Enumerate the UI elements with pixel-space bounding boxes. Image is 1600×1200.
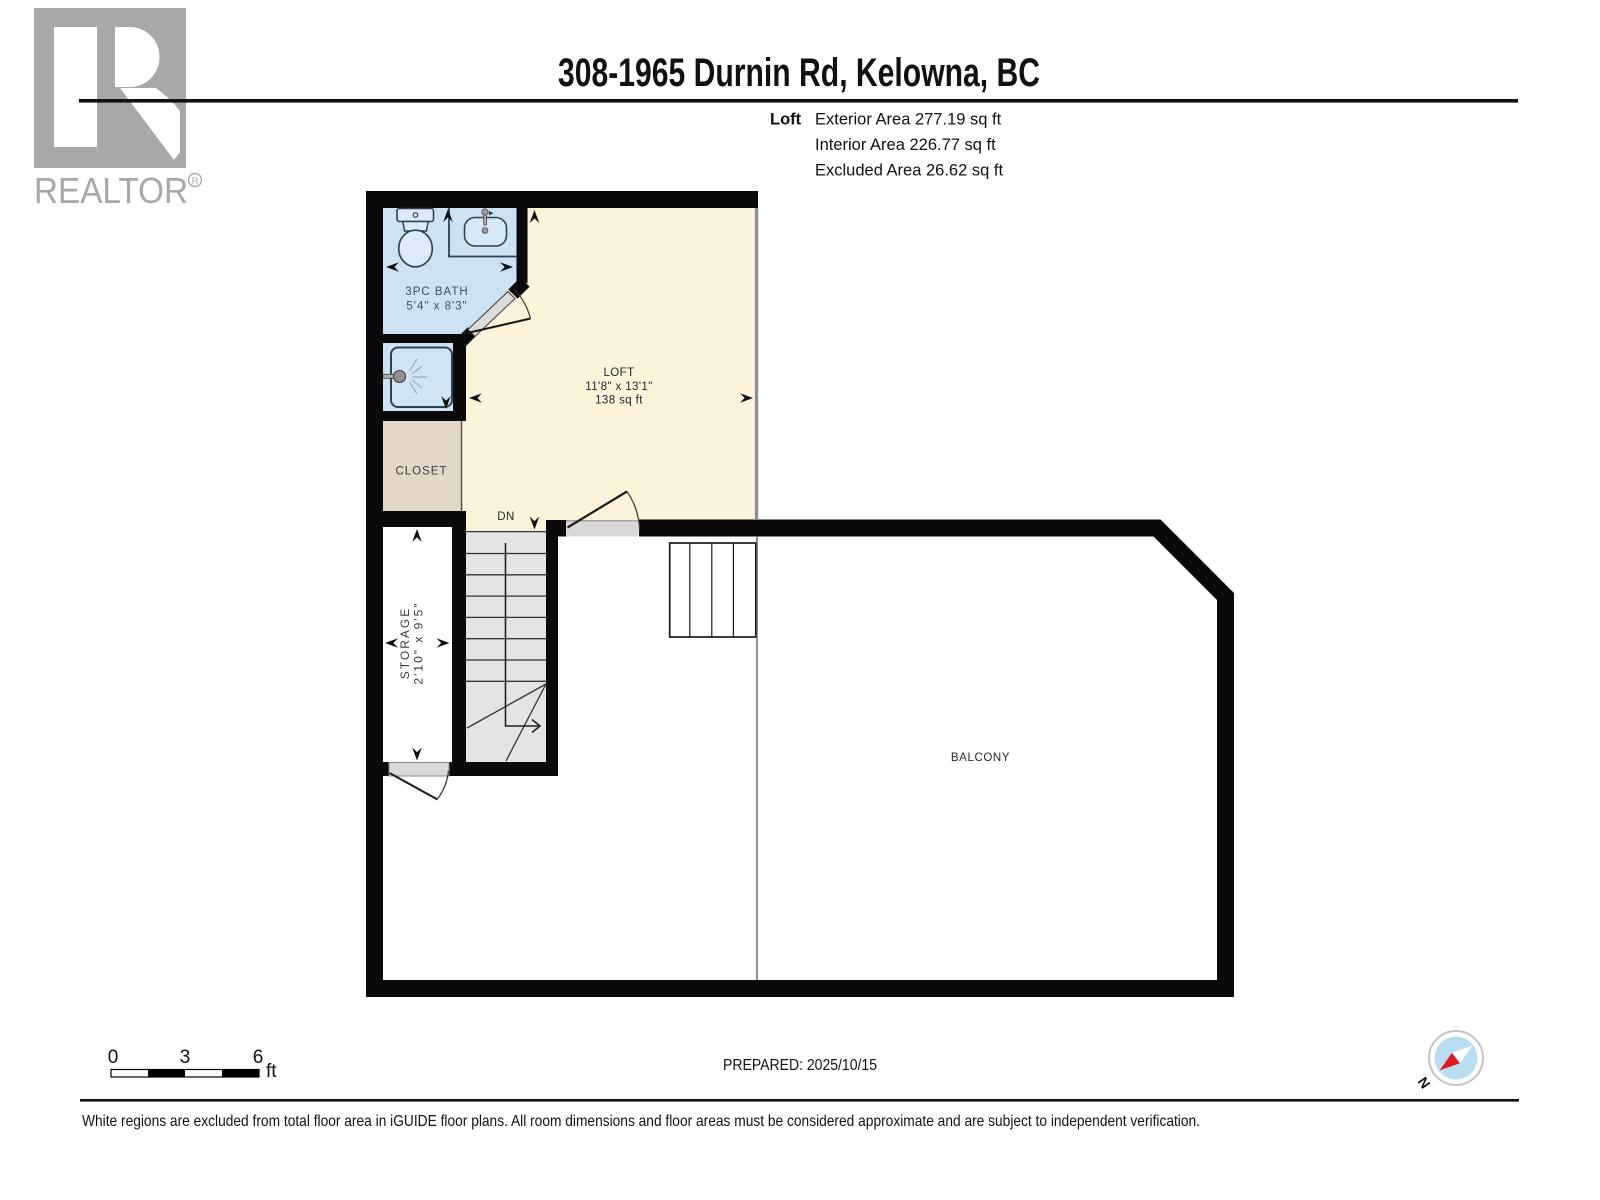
svg-text:11'8" x 13'1": 11'8" x 13'1" bbox=[585, 381, 652, 393]
svg-text:6: 6 bbox=[253, 1047, 264, 1068]
svg-text:138 sq ft: 138 sq ft bbox=[595, 395, 643, 407]
svg-text:N: N bbox=[1414, 1074, 1433, 1091]
svg-text:0: 0 bbox=[108, 1047, 119, 1068]
svg-text:308-1965 Durnin Rd, Kelowna, B: 308-1965 Durnin Rd, Kelowna, BC bbox=[558, 51, 1040, 95]
svg-text:BALCONY: BALCONY bbox=[951, 752, 1010, 764]
svg-text:2'10" x 9'5": 2'10" x 9'5" bbox=[412, 601, 426, 684]
svg-text:R: R bbox=[192, 176, 199, 187]
svg-text:3PC BATH: 3PC BATH bbox=[405, 286, 468, 298]
svg-text:REALTOR: REALTOR bbox=[34, 170, 188, 211]
svg-text:PREPARED: 2025/10/15: PREPARED: 2025/10/15 bbox=[723, 1057, 877, 1074]
svg-text:5'4" x 8'3": 5'4" x 8'3" bbox=[406, 301, 467, 313]
svg-text:LOFT: LOFT bbox=[604, 367, 635, 379]
svg-text:3: 3 bbox=[180, 1047, 191, 1068]
svg-text:CLOSET: CLOSET bbox=[395, 466, 447, 478]
svg-text:Loft: Loft bbox=[770, 111, 802, 129]
svg-text:Exterior Area 277.19 sq ft: Exterior Area 277.19 sq ft bbox=[815, 111, 1002, 129]
svg-text:DN: DN bbox=[497, 511, 515, 523]
svg-text:Interior Area 226.77 sq ft: Interior Area 226.77 sq ft bbox=[815, 136, 996, 154]
svg-text:STORAGE: STORAGE bbox=[398, 607, 412, 679]
svg-text:White regions are excluded fro: White regions are excluded from total fl… bbox=[82, 1113, 1200, 1130]
svg-text:Excluded Area 26.62 sq ft: Excluded Area 26.62 sq ft bbox=[815, 162, 1003, 180]
svg-text:ft: ft bbox=[266, 1061, 277, 1082]
